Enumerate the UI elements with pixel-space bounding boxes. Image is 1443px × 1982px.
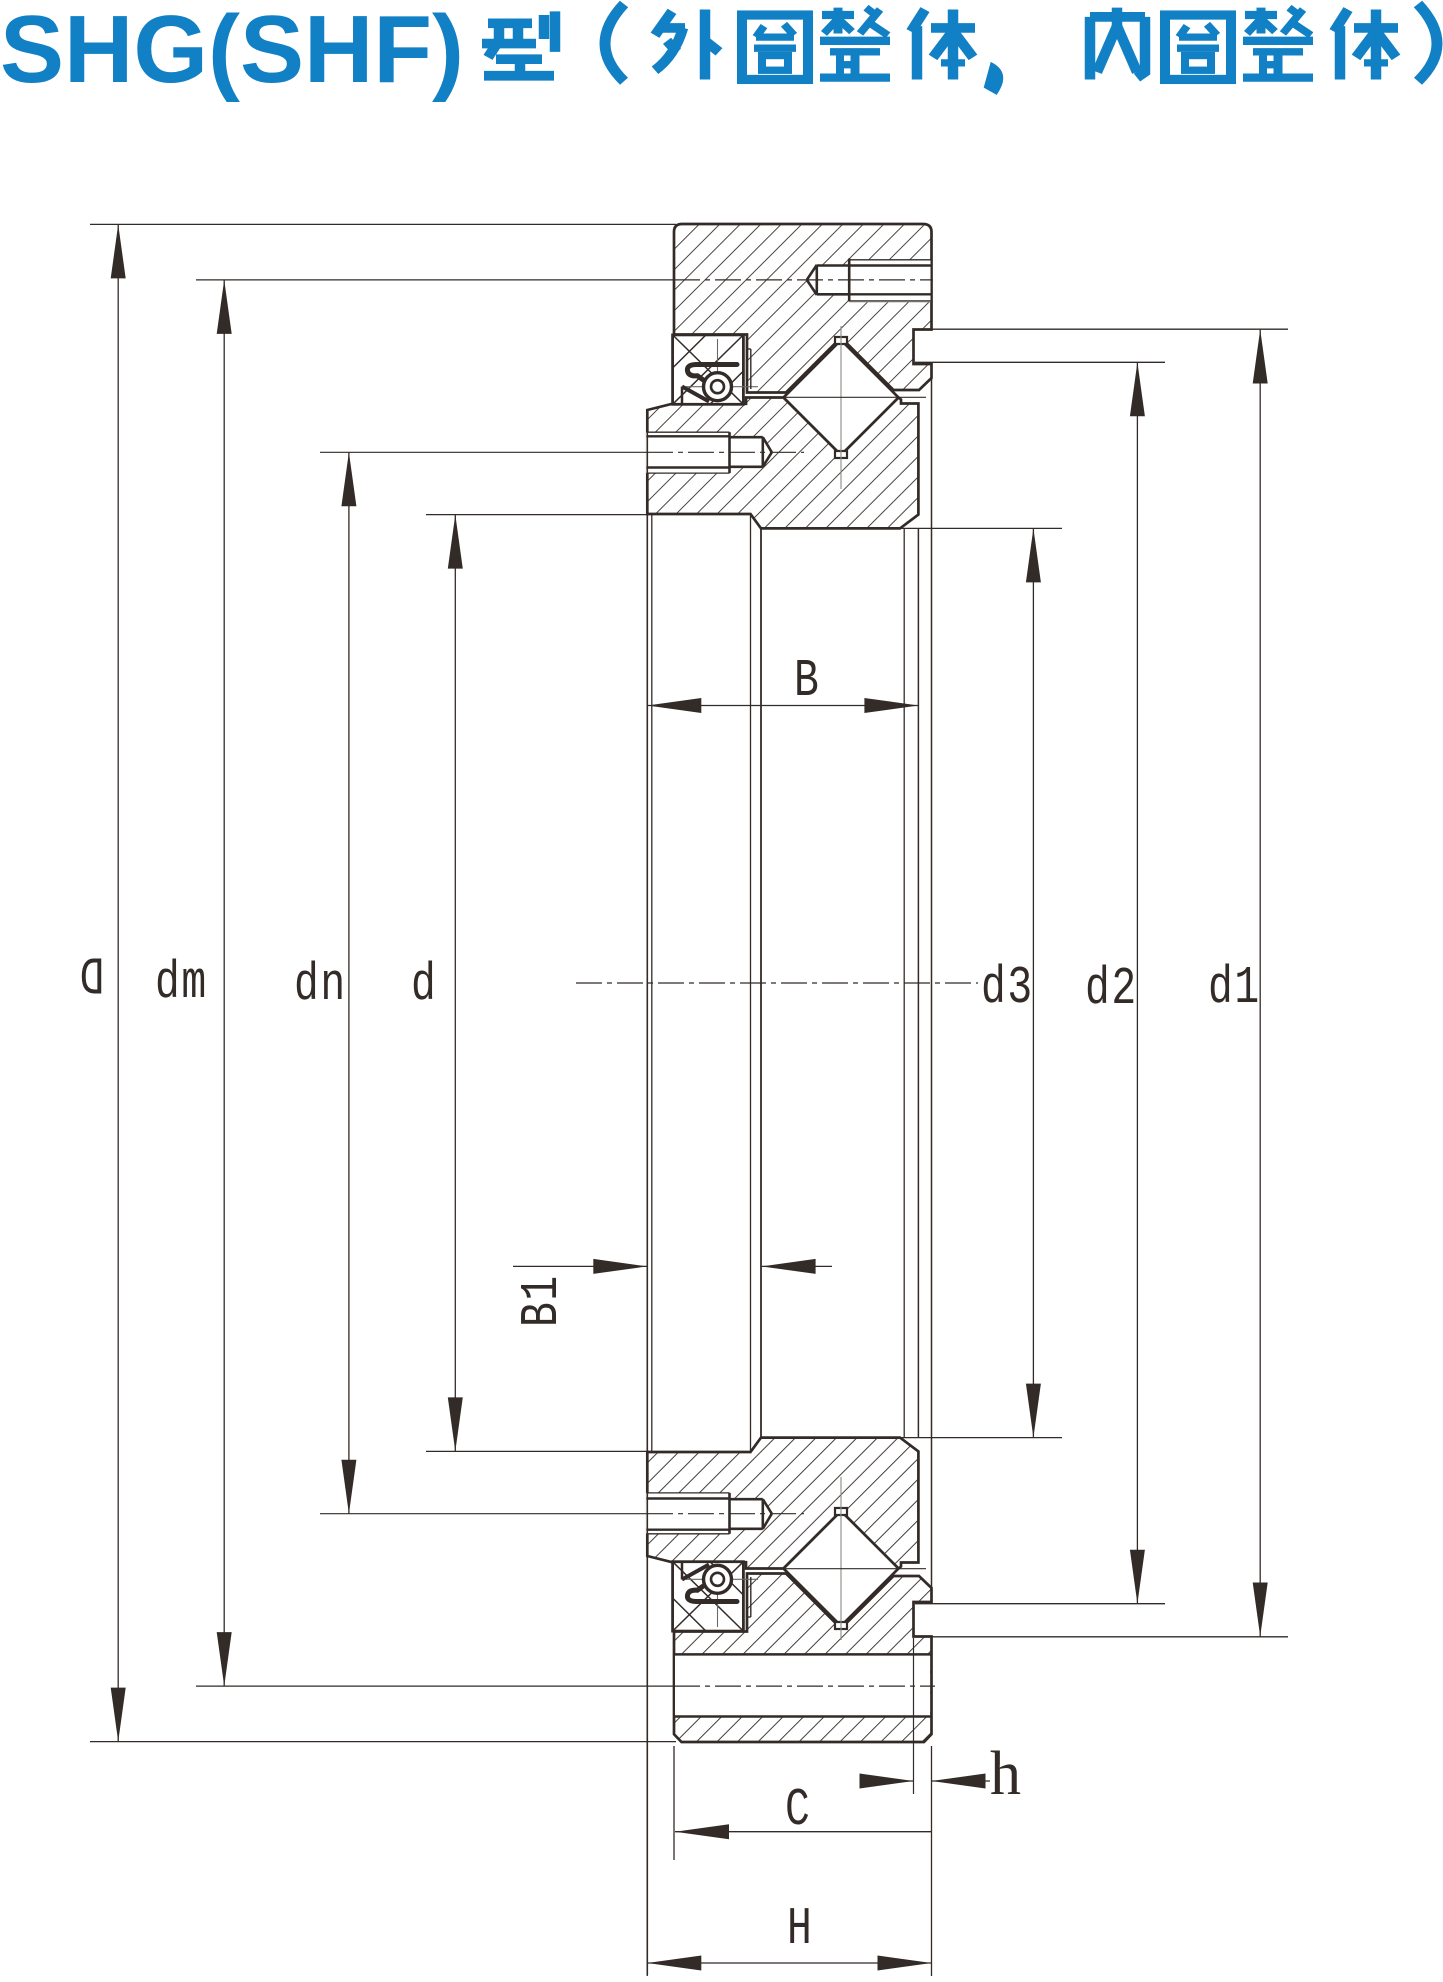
- svg-text:d: d: [411, 956, 437, 1016]
- svg-text:dn: dn: [294, 956, 347, 1016]
- svg-text:B1: B1: [513, 1274, 573, 1327]
- svg-text:SHG(SHF): SHG(SHF): [0, 0, 464, 103]
- svg-text:H: H: [787, 1900, 813, 1960]
- svg-text:d3: d3: [981, 959, 1034, 1019]
- svg-text:d2: d2: [1085, 960, 1138, 1020]
- svg-text:d1: d1: [1208, 959, 1261, 1019]
- svg-text:B: B: [794, 652, 820, 712]
- svg-text:h: h: [990, 1740, 1021, 1808]
- svg-text:C: C: [785, 1781, 811, 1841]
- svg-text:D: D: [78, 942, 104, 1002]
- svg-text:dm: dm: [155, 954, 208, 1014]
